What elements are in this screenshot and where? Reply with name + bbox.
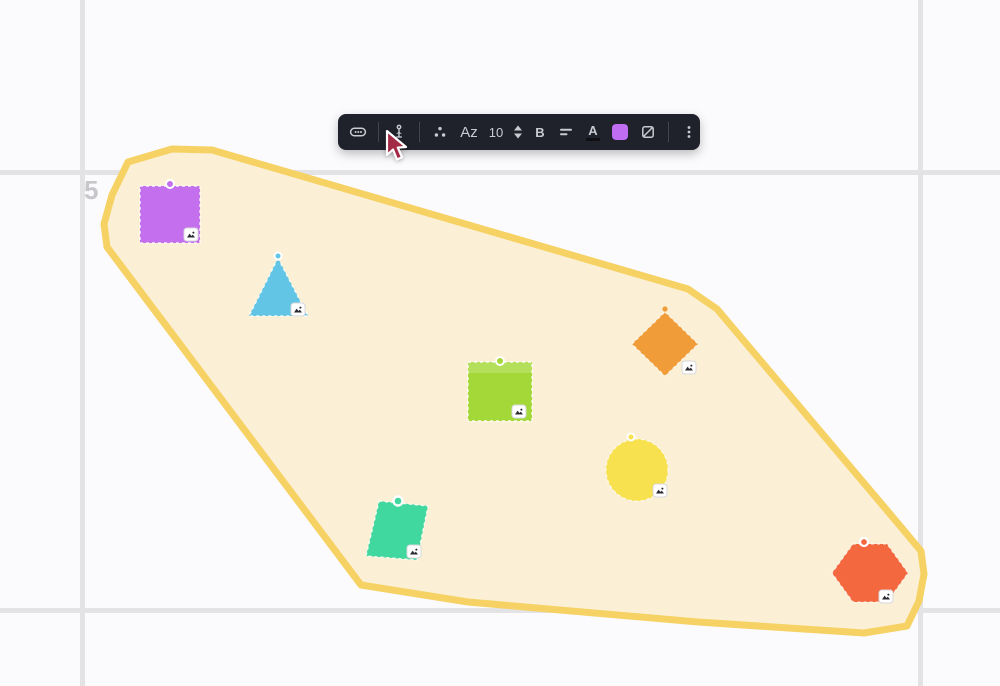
pill-badge-button[interactable]	[345, 119, 371, 145]
text-color-button[interactable]: A	[581, 119, 605, 145]
text-color-swatch	[586, 138, 600, 141]
image-badge[interactable]	[653, 484, 667, 497]
pill-badge-icon	[349, 124, 367, 140]
connector-handle[interactable]	[860, 538, 868, 546]
fill-color-swatch	[612, 124, 628, 140]
font-size-value[interactable]: 10	[485, 119, 507, 145]
font-size-stepper[interactable]	[509, 119, 527, 145]
image-badge[interactable]	[682, 361, 696, 374]
mouse-cursor	[384, 130, 410, 164]
image-badge[interactable]	[879, 590, 893, 603]
shape-green-square[interactable]	[468, 357, 532, 421]
hierarchy-dots-icon	[432, 124, 448, 140]
toolbar-divider	[419, 122, 420, 142]
whiteboard-canvas[interactable]	[0, 0, 1000, 686]
fill-color-button[interactable]	[607, 119, 633, 145]
toolbar-divider	[668, 122, 669, 142]
connector-handle[interactable]	[628, 434, 635, 441]
border-none-icon	[640, 124, 656, 140]
shape-hierarchy-button[interactable]	[427, 119, 453, 145]
kebab-menu-icon	[681, 124, 697, 140]
border-none-button[interactable]	[635, 119, 661, 145]
more-options-button[interactable]	[676, 119, 702, 145]
font-family-button[interactable]: Az	[455, 119, 483, 145]
bold-button[interactable]: B	[529, 119, 551, 145]
connector-handle[interactable]	[496, 357, 504, 365]
image-badge[interactable]	[184, 228, 198, 241]
connector-handle[interactable]	[662, 306, 667, 311]
chevron-down-icon	[513, 133, 523, 139]
image-badge[interactable]	[407, 545, 421, 558]
connector-handle[interactable]	[166, 180, 174, 188]
connector-handle[interactable]	[275, 253, 282, 260]
text-color-letter: A	[588, 124, 597, 137]
image-badge[interactable]	[512, 405, 526, 418]
chevron-up-icon	[513, 125, 523, 131]
connector-handle[interactable]	[394, 497, 403, 506]
toolbar-divider	[378, 122, 379, 142]
text-align-left-icon	[558, 124, 574, 140]
shape-purple-square[interactable]	[140, 180, 200, 243]
text-align-button[interactable]	[553, 119, 579, 145]
cursor-arrow	[387, 131, 406, 160]
image-badge[interactable]	[291, 303, 305, 316]
